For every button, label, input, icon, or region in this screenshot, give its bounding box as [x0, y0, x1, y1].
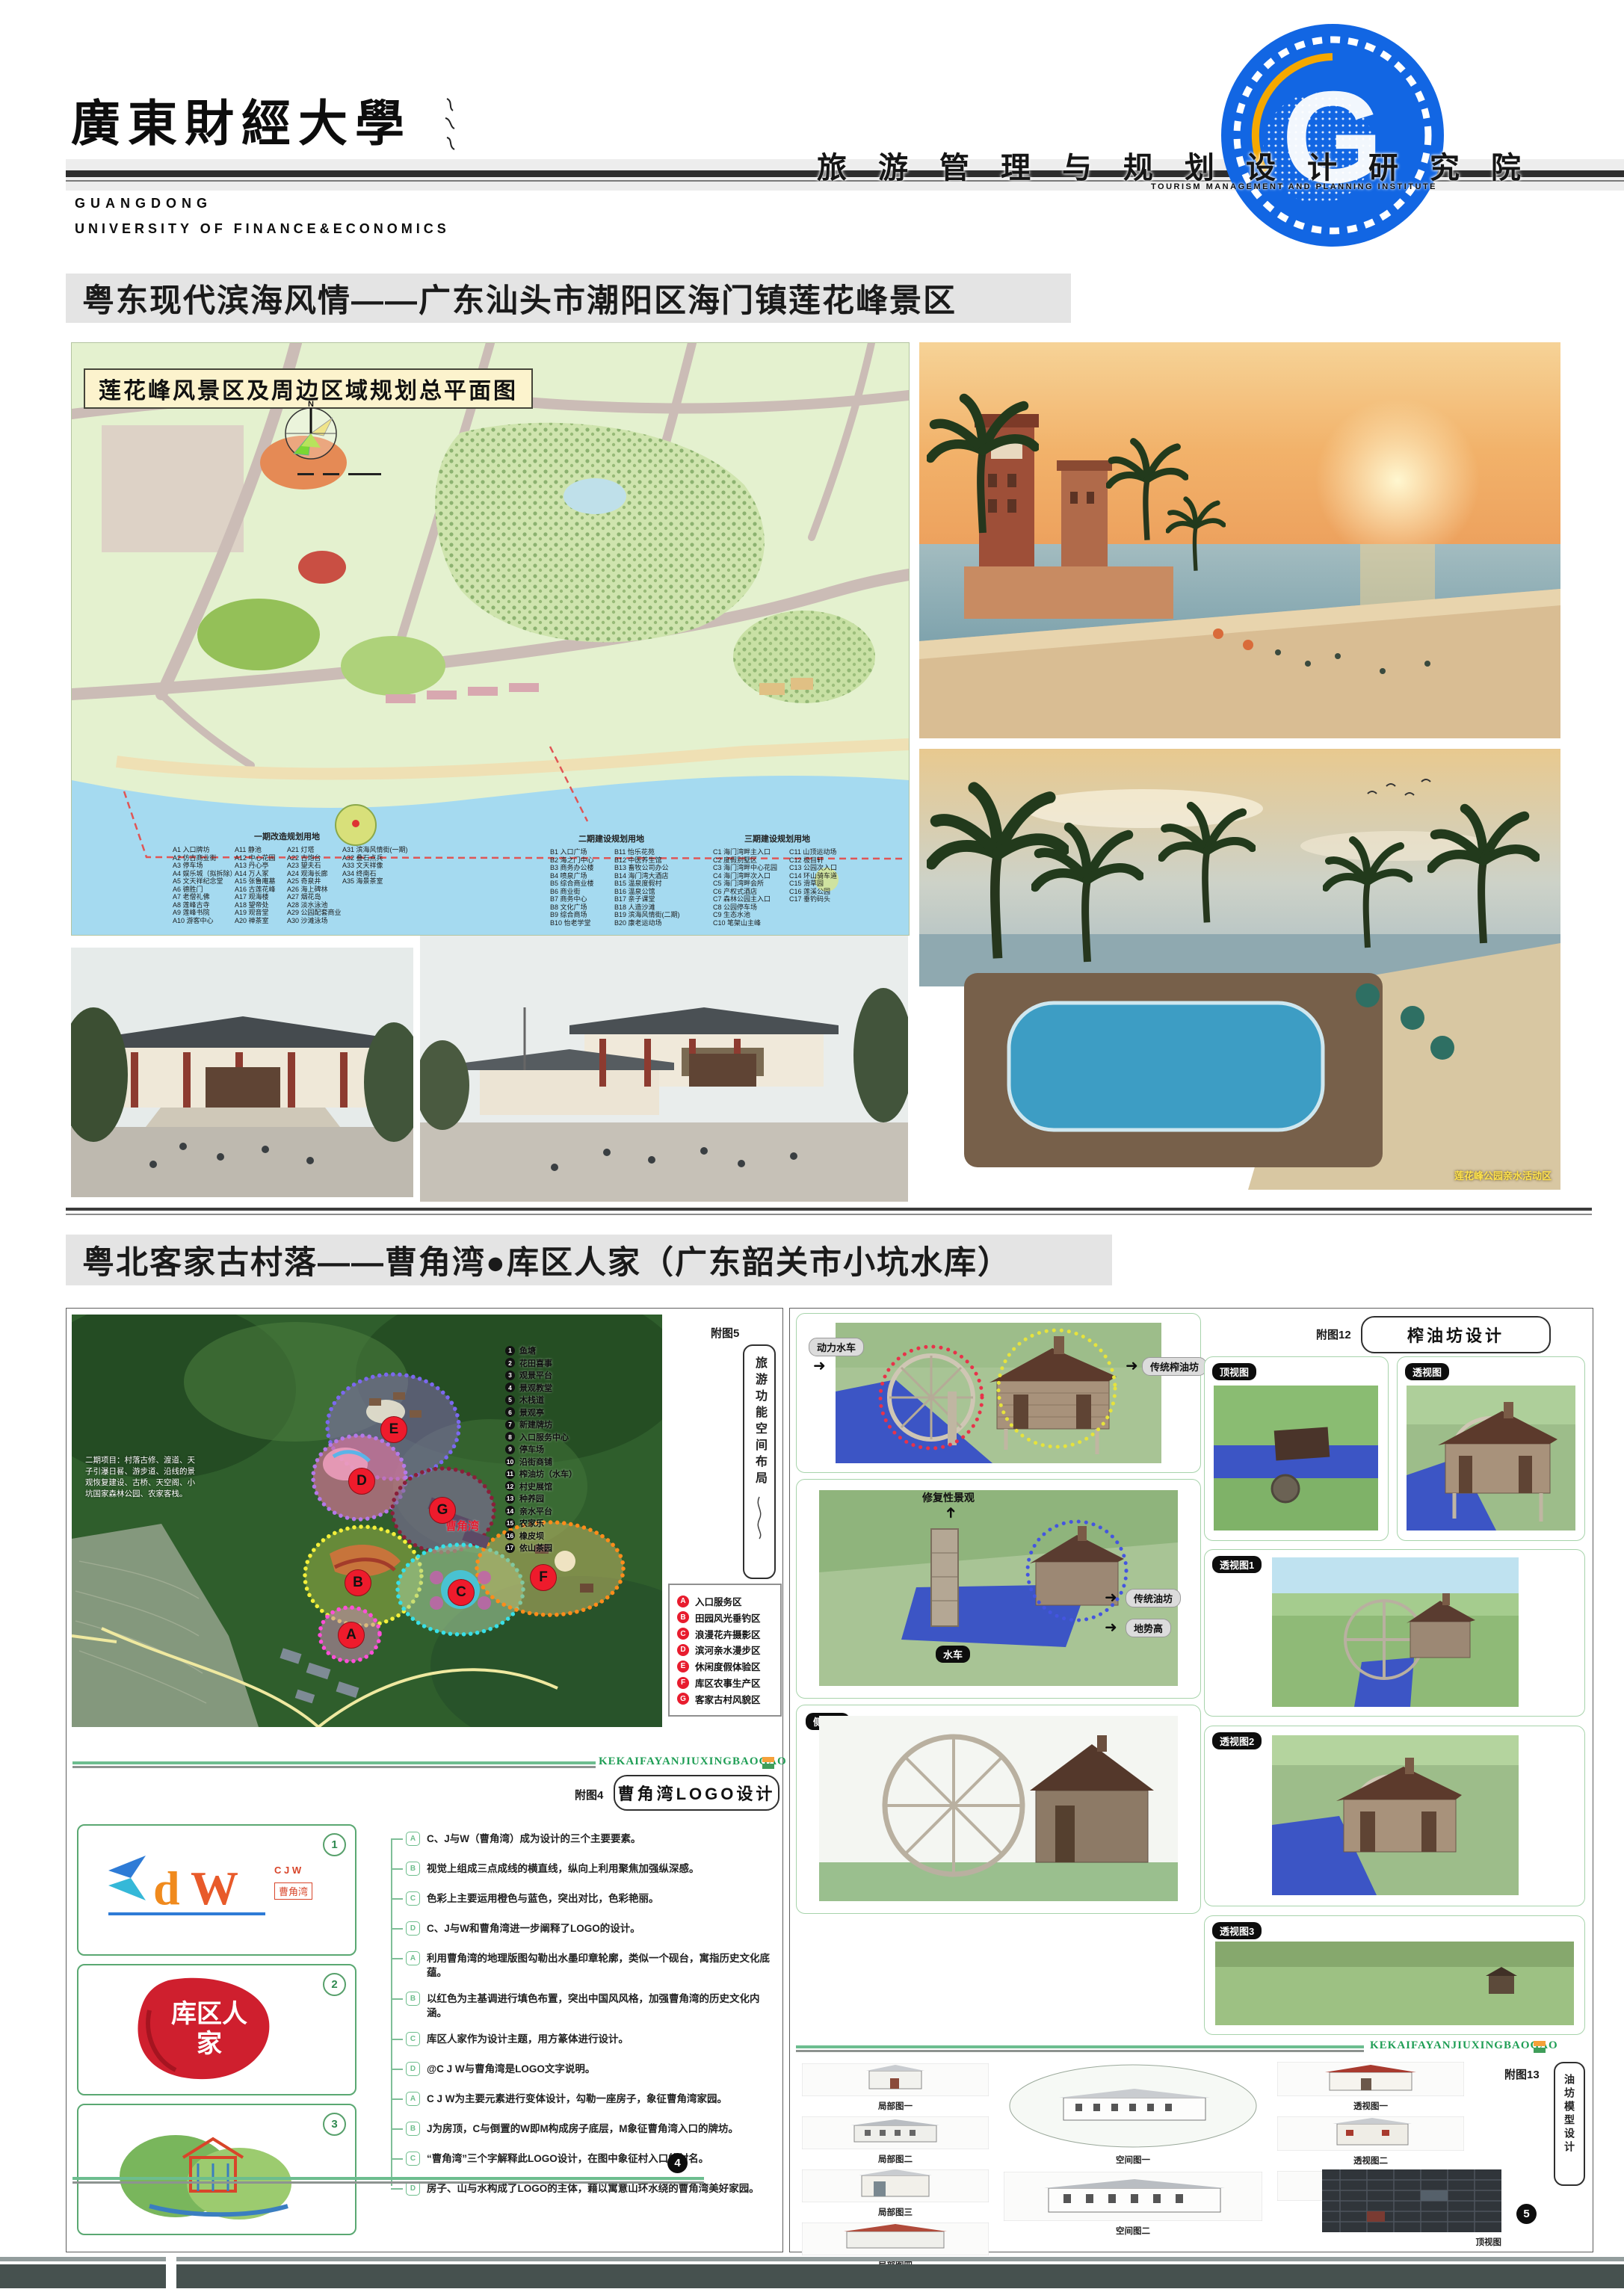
figure13-number: 附图13 [1504, 2066, 1540, 2082]
legend-item: C6 产权式酒店 [713, 888, 777, 896]
point-item: 13种养园 [505, 1492, 577, 1505]
perspective3-panel: 透视图3 [1204, 1915, 1585, 2035]
item-badge: 3 [505, 1371, 515, 1380]
zone-legend-item: D滨河亲水漫步区 [677, 1643, 773, 1657]
oil-design-header-text: 榨油坊设计 [1407, 1323, 1504, 1347]
legend-item: C15 滑草园 [789, 880, 837, 888]
legend-item: A4 娱乐城（拟拆除） [173, 870, 237, 878]
institute-name-cn: 旅游管理与规划设计研究院 [817, 143, 1552, 187]
legend-item: A8 莲峰古寺 [173, 901, 237, 909]
zone-badge-B: B [345, 1569, 371, 1596]
item-badge: 7 [505, 1420, 515, 1430]
arrow-right-icon: ➜ [1105, 1620, 1117, 1635]
legend-item: A1 入口牌坊 [173, 846, 237, 854]
svg-text:d: d [153, 1862, 180, 1915]
model-col1: 局部图一 局部图二 局部图三 局部图四 [802, 2063, 989, 2271]
item-badge: B [406, 1862, 420, 1876]
model-label: 局部图三 [802, 2206, 989, 2218]
legend-group1-title: 一期改造规划用地 [254, 830, 320, 842]
legend-item: B20 康老运动场 [614, 919, 680, 927]
legend-item: B12 中医养生馆 [614, 856, 680, 865]
point-item: 10沿街商铺 [505, 1456, 577, 1468]
zone-badge-D: D [348, 1468, 375, 1495]
point-item: 15农家乐 [505, 1517, 577, 1530]
legend-item: C12 极目轩 [789, 856, 837, 865]
variant1-badge: 1 [323, 1833, 346, 1856]
university-name-en-line1: GUANGDONG [75, 196, 212, 211]
legend-item: A27 烟花岛 [287, 893, 342, 901]
item-badge: 6 [505, 1407, 515, 1417]
zone-legend: A入口服务区B田园风光垂钓区C浪漫花卉摄影区D滨河亲水漫步区E休闲度假体验区F库… [668, 1584, 782, 1717]
item-label: J为房顶，C与倒置的W即M构成房子底层，M象征曹角湾入口的牌坊。 [427, 2123, 738, 2134]
logo-description-item: B以红色为主基调进行填色布置，突出中国风风格，加强曹角湾的历史文化内涵。 [391, 1992, 777, 2020]
item-label: 亲水平台 [519, 1505, 552, 1517]
legend-item: A18 望帝处 [235, 901, 276, 909]
item-badge: C [406, 1891, 420, 1906]
zone-badge-G: G [429, 1497, 456, 1524]
item-badge: B [677, 1611, 689, 1623]
logo-description-item: AC J W为主要元素进行变体设计，勾勒一座房子，象征曹角湾家园。 [391, 2092, 777, 2110]
logo-description-item: A利用曹角湾的地理版图勾勒出水墨印章轮廓，类似一个砚台，寓指历史文化底蕴。 [391, 1951, 777, 1980]
zone-badge-C: C [448, 1579, 475, 1606]
beach-sunset-photo [919, 342, 1560, 738]
item-label: 花田喜事 [519, 1357, 552, 1369]
item-label: 库区农事生产区 [695, 1675, 761, 1690]
legend-item: C16 莲溪公园 [789, 888, 837, 896]
calligraphy-signature [441, 94, 460, 155]
restorative-landscape-label: 修复性景观 [922, 1490, 975, 1505]
legend-item: B11 怡乐花苑 [614, 848, 680, 856]
page-number-badge-5: 5 [1516, 2204, 1537, 2224]
item-badge: B [406, 2122, 420, 2136]
pool-photo-caption: 莲花峰公园亲水活动区 [1454, 1168, 1552, 1182]
legend-item: A23 望夫石 [287, 862, 342, 870]
item-badge: 13 [505, 1494, 515, 1504]
item-label: 客家古村风貌区 [695, 1692, 761, 1706]
university-name-en-line2: UNIVERSITY OF FINANCE&ECONOMICS [75, 221, 450, 237]
item-label: 景观教堂 [519, 1382, 552, 1394]
arrow-right-icon: ➜ [1105, 1590, 1117, 1605]
zone-badge-F: F [530, 1564, 557, 1591]
legend-item: C10 笔架山主峰 [713, 919, 777, 927]
zone-legend-item: A入口服务区 [677, 1594, 773, 1608]
item-label: 橡皮坝 [519, 1530, 544, 1542]
legend-item: A31 滨海风情街(一期) [342, 846, 408, 854]
legend-item: A14 万人冢 [235, 870, 276, 878]
legend-g1-col4: A31 滨海风情街(一期)A32 叠石点兵A33 文天祥像A34 终南石A35 … [342, 846, 408, 886]
item-badge: 1 [505, 1346, 515, 1356]
legend-item: B7 商务中心 [550, 895, 594, 904]
scale-bar-icon [296, 469, 393, 479]
point-item: 6景观亭 [505, 1406, 577, 1419]
legend-item: B5 综合商业楼 [550, 880, 594, 888]
legend-item: C7 森林公园主入口 [713, 895, 777, 904]
item-badge: 5 [505, 1395, 515, 1405]
roof-grid-image: 顶视图 [1322, 2169, 1501, 2248]
legend-item: A10 游客中心 [173, 917, 237, 925]
item-label: 库区人家作为设计主题，用方篆体进行设计。 [427, 2033, 629, 2045]
temple-rendering-photo [71, 948, 413, 1197]
perspective-label: 透视图 [1405, 1363, 1449, 1380]
legend-item: A15 张鲁庵墓 [235, 877, 276, 886]
legend-item: C8 公园停车场 [713, 904, 777, 912]
logo-kdw-art: d W [78, 1826, 355, 1954]
legend-item: B2 海之门中心 [550, 856, 594, 865]
legend-item: A3 停车场 [173, 862, 237, 870]
logo-design-header-text: 曹角湾LOGO设计 [618, 1781, 776, 1805]
item-badge: 16 [505, 1530, 515, 1540]
oil-press-panel: 附图12 榨油坊设计 [789, 1308, 1593, 2252]
item-badge: 11 [505, 1469, 515, 1479]
legend-item: C14 环山骑车道 [789, 872, 837, 880]
logo-variant-box-3: 3 [77, 2104, 356, 2235]
item-label: 木栈道 [519, 1394, 544, 1406]
model-label: 局部图一 [802, 2100, 989, 2112]
point-item: 12村史展馆 [505, 1480, 577, 1493]
legend-item: A22 古炮台 [287, 854, 342, 862]
legend-item: A29 公园配套商业 [287, 909, 342, 917]
item-label: 色彩上主要运用橙色与蓝色，突出对比，色彩艳丽。 [427, 1893, 659, 1904]
arrow-up-icon: ➜ [943, 1507, 958, 1519]
perspective-panel: 透视图 [1397, 1356, 1585, 1541]
item-badge: A [677, 1596, 689, 1607]
svg-text:W: W [191, 1862, 238, 1915]
item-badge: 9 [505, 1445, 515, 1454]
figure5-label: 旅游功能空间布局 [750, 1356, 768, 1488]
point-item: 1鱼塘 [505, 1344, 577, 1357]
section1-title-bar: 粤东现代滨海风情——广东汕头市潮阳区海门镇莲花峰景区 [66, 274, 1071, 323]
model-label: 透视图二 [1277, 2155, 1464, 2166]
oil-design-header: 榨油坊设计 [1361, 1316, 1551, 1353]
legend-g1-col3: A21 灯塔A22 古炮台A23 望夫石A24 观海长廊A25 奇泉井A26 海… [287, 846, 342, 924]
green-divider-left [72, 1761, 596, 1768]
logo-description-item: BJ为房顶，C与倒置的W即M构成房子底层，M象征曹角湾入口的牌坊。 [391, 2122, 777, 2140]
point-item: 9停车场 [505, 1443, 577, 1456]
item-label: 村史展馆 [519, 1480, 552, 1492]
side-view-panel: 侧视图 [796, 1705, 1201, 1914]
model-label: 局部图二 [802, 2153, 989, 2165]
item-label: 田园风光垂钓区 [695, 1610, 761, 1625]
model-label: 空间图一 [1004, 2154, 1262, 2166]
variant3-badge: 3 [323, 2113, 346, 2136]
legend-item: A26 海上碑林 [287, 886, 342, 894]
logo-description-list: AC、J与W（曹角湾）成为设计的三个主要要素。B视觉上组成三点成线的横直线，纵向… [391, 1832, 777, 2211]
wheel-mill-panel: 动力水车 ➜ ➜ 传统榨油坊 [796, 1313, 1201, 1473]
spatial-layout-panel: 二期项目：村落古修、渡道、天子引瀑日晷、游步道、沿线的景观恢复建设、古桥、天空阁… [66, 1308, 783, 2252]
zone-legend-item: G客家古村风貌区 [677, 1692, 773, 1706]
point-item: 16橡皮坝 [505, 1530, 577, 1542]
item-label: 停车场 [519, 1443, 544, 1455]
logo-variant-box-2: 2 库区人家 [77, 1964, 356, 2095]
university-name-calligraphy: 廣東財經大學 [71, 84, 412, 155]
legend-item: C5 海门湾畔会所 [713, 880, 777, 888]
legend-item: C11 山顶运动场 [789, 848, 837, 856]
figure5-number: 附图5 [711, 1325, 739, 1341]
logo-design-header: 曹角湾LOGO设计 [614, 1775, 779, 1811]
pool-dusk-photo: 莲花峰公园亲水活动区 [919, 749, 1560, 1190]
logo2-text: 库区人家 [168, 1999, 250, 2059]
zone-legend-item: C浪漫花卉摄影区 [677, 1627, 773, 1641]
legend-g1-col2: A11 静池A12 中心花园A13 丹心亭A14 万人冢A15 张鲁庵墓A16 … [235, 846, 276, 924]
legend-item: A2 仿古商业街 [173, 854, 237, 862]
legend-item: C13 公园次入口 [789, 864, 837, 872]
figure5-label-box: 旅游功能空间布局 [743, 1344, 776, 1579]
legend-item: A34 终南石 [342, 870, 408, 878]
item-label: 入口服务中心 [519, 1431, 569, 1443]
item-label: 新建牌坊 [519, 1418, 552, 1430]
item-label: 景观亭 [519, 1406, 544, 1418]
figure12-number: 附图12 [1316, 1326, 1351, 1342]
item-label: 鱼塘 [519, 1344, 536, 1356]
model-col2: 空间图一 空间图二 [1004, 2062, 1262, 2237]
legend-item: C3 海门湾畔中心花园 [713, 864, 777, 872]
footer-bar-main [176, 2264, 1624, 2288]
legend-item: A7 老僧礼佛 [173, 893, 237, 901]
logo-variant-box-1: 1 d W C J W 曹角湾 [77, 1824, 356, 1956]
top-view-panel: 顶视图 [1204, 1356, 1389, 1541]
legend-g2-col2: B11 怡乐花苑B12 中医养生馆B13 畜牧公司办公B14 海门湾大酒店B15… [614, 848, 680, 927]
item-badge: 14 [505, 1506, 515, 1516]
legend-item: B18 人造沙滩 [614, 904, 680, 912]
logo1-letters: C J W [274, 1865, 301, 1876]
logo-description-item: C“曹角湾”三个字解释此LOGO设计，在图中象征村入口的村名。 [391, 2152, 777, 2169]
green-divider-left-bottom [72, 2177, 704, 2184]
legend-g3-col1: C1 海门湾畔主入口C2 度假别墅区C3 海门湾畔中心花园C4 海门湾畔次入口C… [713, 848, 777, 927]
item-badge: D [406, 2062, 420, 2076]
legend-item: A11 静池 [235, 846, 276, 854]
legend-item: B1 入口广场 [550, 848, 594, 856]
point-item: 2花田喜事 [505, 1357, 577, 1370]
legend-item: A25 奇泉井 [287, 877, 342, 886]
item-badge: C [406, 2152, 420, 2166]
logo-description-item: B视觉上组成三点成线的横直线，纵向上利用聚焦加强纵深感。 [391, 1862, 777, 1879]
legend-item: A35 海景茶室 [342, 877, 408, 886]
item-badge: F [677, 1677, 689, 1689]
arrow-right-icon: ➜ [1126, 1359, 1138, 1374]
point-list: 1鱼塘2花田喜事3观景平台4景观教堂5木栈道6景观亭7新建牌坊8入口服务中心9停… [505, 1344, 577, 1554]
footer-stripe-left [0, 2257, 166, 2261]
perspective2-panel: 透视图2 [1204, 1726, 1585, 1906]
legend-item: A20 禅茶室 [235, 917, 276, 925]
point-item: 14亲水平台 [505, 1505, 577, 1518]
legend-item: A16 古莲花峰 [235, 886, 276, 894]
perspective1-label: 透视图1 [1212, 1556, 1262, 1573]
compass-north-label: N [308, 400, 314, 409]
legend-item: A33 文天祥像 [342, 862, 408, 870]
point-item: 5木栈道 [505, 1394, 577, 1406]
legend-group3-title: 三期建设规划用地 [744, 833, 810, 844]
item-label: 房子、山与水构成了LOGO的主体，藉以寓意山环水绕的曹角湾美好家园。 [427, 2183, 759, 2194]
item-label: 沿街商铺 [519, 1456, 552, 1468]
item-badge: A [406, 1832, 420, 1846]
item-badge: D [677, 1644, 689, 1656]
item-badge: 15 [505, 1519, 515, 1528]
item-badge: D [406, 1921, 420, 1936]
roof-grid-label: 顶视图 [1322, 2236, 1501, 2248]
waterwheel-label: 水车 [936, 1646, 970, 1663]
legend-item: A5 文天祥纪念堂 [173, 877, 237, 886]
masterplan-map: 莲花峰风景区及周边区域规划总平面图 N 一期改造规划用地 A1 入口牌坊A2 仿… [71, 342, 910, 936]
legend-item: C2 度假别墅区 [713, 856, 777, 865]
item-badge: A [406, 1951, 420, 1965]
legend-item: B4 喷泉广场 [550, 872, 594, 880]
item-label: @C J W与曹角湾是LOGO文字说明。 [427, 2063, 595, 2075]
item-label: 浪漫花卉摄影区 [695, 1627, 761, 1641]
point-item: 7新建牌坊 [505, 1418, 577, 1431]
figure13-label-box: 油坊模型设计 [1554, 2062, 1585, 2186]
legend-item: B15 温泉度假村 [614, 880, 680, 888]
legend-item: A13 丹心亭 [235, 862, 276, 870]
point-item: 4景观教堂 [505, 1382, 577, 1394]
item-label: 榨油坊（水车） [519, 1468, 577, 1480]
report-watermark-text-2: KEKAIFAYANJIUXINGBAOGAO [1370, 2039, 1558, 2052]
arrow-right-icon: ➜ [813, 1359, 826, 1374]
item-badge: G [677, 1693, 689, 1705]
legend-item: A28 淡水泳池 [287, 901, 342, 909]
perspective2-label: 透视图2 [1212, 1732, 1262, 1749]
report-watermark-text: KEKAIFAYANJIUXINGBAOGAO [599, 1755, 787, 1768]
section2-title: 粤北客家古村落——曹角湾●库区人家（广东韶关市小坑水库） [82, 1237, 1011, 1283]
section1-title: 粤东现代滨海风情——广东汕头市潮阳区海门镇莲花峰景区 [82, 275, 957, 321]
legend-g3-col2: C11 山顶运动场C12 极目轩C13 公园次入口C14 环山骑车道C15 滑草… [789, 848, 837, 904]
logo-description-item: DC、J与W和曹角湾进一步阐释了LOGO的设计。 [391, 1921, 777, 1939]
zone-badge-A: A [338, 1622, 365, 1649]
item-badge: 2 [505, 1358, 515, 1368]
item-label: 依山茶园 [519, 1542, 552, 1554]
item-badge: 10 [505, 1457, 515, 1466]
zone-badge-E: E [380, 1416, 407, 1443]
logo1-caption: 曹角湾 [274, 1882, 312, 1900]
item-label: 滨河亲水漫步区 [695, 1643, 761, 1657]
compass-rose-icon: N [279, 398, 343, 466]
point-item: 3观景平台 [505, 1369, 577, 1382]
section-divider-thin [66, 1214, 1592, 1215]
traditional-mill-label: 传统榨油坊 [1142, 1357, 1207, 1376]
perspective3-label: 透视图3 [1212, 1922, 1262, 1939]
item-label: C、J与W（曹角湾）成为设计的三个主要要素。 [427, 1833, 641, 1844]
restoration-panel: 修复性景观 ➜ 水车 ➜ 传统油坊 ➜ 地势高 [796, 1479, 1201, 1699]
item-label: 农家乐 [519, 1517, 544, 1529]
item-label: 以红色为主基调进行填色布置，突出中国风风格，加强曹角湾的历史文化内涵。 [427, 1993, 760, 2018]
item-label: 种养园 [519, 1492, 544, 1504]
logo-description-item: AC、J与W（曹角湾）成为设计的三个主要要素。 [391, 1832, 777, 1850]
section2-title-bar: 粤北客家古村落——曹角湾●库区人家（广东韶关市小坑水库） [66, 1235, 1112, 1285]
legend-item: C9 生态水池 [713, 911, 777, 919]
green-divider-right [796, 2045, 1364, 2052]
report-mark-icon [762, 1755, 775, 1770]
item-badge: 17 [505, 1543, 515, 1553]
legend-item: C4 海门湾畔次入口 [713, 872, 777, 880]
footer-stripe-main [176, 2257, 1624, 2261]
figure4-number: 附图4 [575, 1787, 603, 1803]
zone-legend-item: E休闲度假体验区 [677, 1659, 773, 1673]
legend-item: A9 莲峰书院 [173, 909, 237, 917]
poster-page: 廣東財經大學 GUANGDONG UNIVERSITY OF FINANCE&E… [0, 0, 1624, 2295]
legend-item: B3 商务办公楼 [550, 864, 594, 872]
legend-item: A24 观海长廊 [287, 870, 342, 878]
item-badge: C [406, 2032, 420, 2046]
variant2-badge: 2 [323, 1973, 346, 1996]
item-badge: B [406, 1992, 420, 2006]
item-label: “曹角湾”三个字解释此LOGO设计，在图中象征村入口的村名。 [427, 2153, 708, 2164]
aerial-plan-map: 二期项目：村落古修、渡道、天子引瀑日晷、游步道、沿线的景观恢复建设、古桥、天空阁… [72, 1315, 662, 1727]
point-item: 17依山茶园 [505, 1542, 577, 1554]
item-badge: 12 [505, 1481, 515, 1491]
logo-description-item: C库区人家作为设计主题，用方篆体进行设计。 [391, 2032, 777, 2050]
legend-item: A32 叠石点兵 [342, 854, 408, 862]
item-label: 入口服务区 [695, 1594, 742, 1608]
legend-item: B8 文化广场 [550, 904, 594, 912]
legend-item: B6 商业街 [550, 888, 594, 896]
footer-bar-left [0, 2264, 166, 2288]
item-badge: 4 [505, 1383, 515, 1392]
perspective1-panel: 透视图1 [1204, 1549, 1585, 1717]
legend-item: A19 观音堂 [235, 909, 276, 917]
item-label: C J W为主要元素进行变体设计，勾勒一座房子，象征曹角湾家园。 [427, 2093, 727, 2104]
item-label: 观景平台 [519, 1369, 552, 1381]
item-badge: C [677, 1628, 689, 1640]
legend-item: B16 温泉公馆 [614, 888, 680, 896]
logo-description-item: D房子、山与水构成了LOGO的主体，藉以寓意山环水绕的曹角湾美好家园。 [391, 2181, 777, 2199]
item-badge: A [406, 2092, 420, 2106]
phase2-note: 二期项目：村落古修、渡道、天子引瀑日晷、游步道、沿线的景观恢复建设、古桥、天空阁… [85, 1455, 202, 1500]
legend-item: A21 灯塔 [287, 846, 342, 854]
legend-item: A12 中心花园 [235, 854, 276, 862]
legend-item: A17 观海楼 [235, 893, 276, 901]
item-badge: 8 [505, 1432, 515, 1442]
plaza-rendering-photo [420, 936, 908, 1202]
item-badge: E [677, 1661, 689, 1672]
legend-item: B19 滨海风情街(二期) [614, 911, 680, 919]
page-number-badge-4: 4 [667, 2153, 688, 2173]
figure13-label: 油坊模型设计 [1562, 2074, 1577, 2155]
point-item: 8入口服务中心 [505, 1431, 577, 1444]
legend-item: C17 垂钓码头 [789, 895, 837, 904]
top-view-label: 顶视图 [1212, 1363, 1256, 1380]
zone-legend-item: B田园风光垂钓区 [677, 1610, 773, 1625]
legend-item: B14 海门湾大酒店 [614, 872, 680, 880]
institute-logo: G [1220, 22, 1445, 248]
item-label: 休闲度假体验区 [695, 1659, 761, 1673]
item-label: 利用曹角湾的地理版图勾勒出水墨印章轮廓，类似一个砚台，寓指历史文化底蕴。 [427, 1953, 770, 1978]
item-label: C、J与W和曹角湾进一步阐释了LOGO的设计。 [427, 1923, 640, 1934]
legend-item: A6 德胜门 [173, 886, 237, 894]
section-divider [66, 1208, 1592, 1211]
item-label: 视觉上组成三点成线的横直线，纵向上利用聚焦加强纵深感。 [427, 1863, 700, 1874]
legend-g2-col1: B1 入口广场B2 海之门中心B3 商务办公楼B4 喷泉广场B5 综合商业楼B6… [550, 848, 594, 927]
model-label: 空间图二 [1004, 2225, 1262, 2237]
power-wheel-label: 动力水车 [809, 1338, 864, 1356]
logo-description-item: C色彩上主要运用橙色与蓝色，突出对比，色彩艳丽。 [391, 1891, 777, 1909]
zone-legend-item: F库区农事生产区 [677, 1675, 773, 1690]
report-mark-icon [1533, 2039, 1546, 2054]
point-item: 11榨油坊（水车） [505, 1468, 577, 1480]
legend-item: B9 综合商场 [550, 911, 594, 919]
flourish-icon [753, 1495, 765, 1540]
oil-workshop-label: 传统油坊 [1126, 1589, 1181, 1607]
legend-item: B10 怡老学堂 [550, 919, 594, 927]
logo-description-item: D@C J W与曹角湾是LOGO文字说明。 [391, 2062, 777, 2080]
legend-g1-col1: A1 入口牌坊A2 仿古商业街A3 停车场A4 娱乐城（拟拆除）A5 文天祥纪念… [173, 846, 237, 924]
high-ground-label: 地势高 [1126, 1619, 1171, 1637]
legend-item: C1 海门湾畔主入口 [713, 848, 777, 856]
legend-group2-title: 二期建设规划用地 [578, 833, 644, 844]
logo-mountain-art [78, 2105, 355, 2234]
legend-item: B13 畜牧公司办公 [614, 864, 680, 872]
model-label: 透视图一 [1277, 2100, 1464, 2112]
legend-item: B17 亲子课堂 [614, 895, 680, 904]
legend-item: A30 沙滩泳场 [287, 917, 342, 925]
